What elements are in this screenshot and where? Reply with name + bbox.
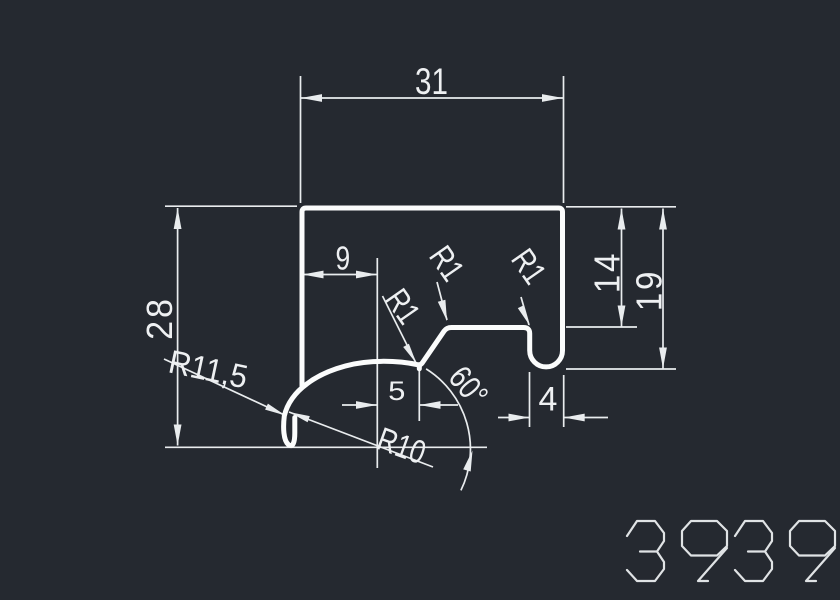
svg-text:14: 14	[588, 251, 628, 293]
svg-text:31: 31	[415, 62, 448, 103]
svg-text:9: 9	[335, 241, 350, 277]
svg-text:4: 4	[539, 381, 558, 419]
svg-text:5: 5	[388, 377, 405, 407]
svg-text:28: 28	[140, 296, 180, 340]
svg-text:19: 19	[630, 269, 670, 311]
